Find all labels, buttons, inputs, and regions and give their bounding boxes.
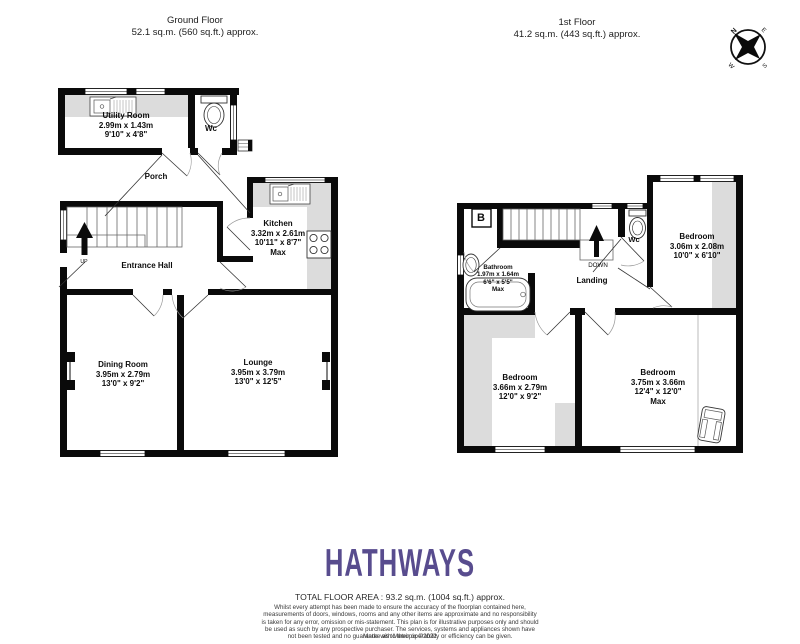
room-dim-imperial: 6'6" x 5'5" xyxy=(477,279,519,286)
label-up: UP xyxy=(80,258,87,268)
room-dim-max: Max xyxy=(251,248,305,258)
room-dim-imperial: 12'4" x 12'0" xyxy=(631,387,685,397)
room-dim-metric: 3.66m x 2.79m xyxy=(493,383,547,393)
room-dim-metric: 2.99m x 1.43m xyxy=(99,121,153,131)
label-down: DOWN xyxy=(588,261,608,271)
first-floor-title: 1st Floor xyxy=(437,17,717,29)
label-bedroom-small: Bedroom 3.06m x 2.08m 10'0" x 6'10" xyxy=(670,232,724,261)
room-dim-imperial: 13'0" x 12'5" xyxy=(231,377,285,387)
ground-walls xyxy=(58,88,338,457)
first-walls xyxy=(457,175,743,453)
stairs-direction: DOWN xyxy=(588,261,608,271)
room-name: Bedroom xyxy=(493,373,547,383)
label-bedroom-left: Bedroom 3.66m x 2.79m 12'0" x 9'2" xyxy=(493,373,547,402)
hathways-logo: HATHWAYS xyxy=(20,541,780,586)
room-name: Dining Room xyxy=(96,360,150,370)
room-dim-imperial: 10'0" x 6'10" xyxy=(670,251,724,261)
compass-star xyxy=(734,33,761,60)
room-name: Wc xyxy=(628,235,639,245)
armchair-icon xyxy=(697,406,726,443)
room-dim-imperial: 10'11" x 8'7" xyxy=(251,238,305,248)
room-name: Entrance Hall xyxy=(121,261,172,271)
room-dim-imperial: 13'0" x 9'2" xyxy=(96,379,150,389)
compass-w: W xyxy=(726,62,734,70)
up-arrow xyxy=(76,222,93,255)
label-lounge: Lounge 3.95m x 3.79m 13'0" x 12'5" xyxy=(231,358,285,387)
wc-toilet-icon xyxy=(201,96,227,127)
compass-e: E xyxy=(760,27,767,34)
room-dim-imperial: 12'0" x 9'2" xyxy=(493,392,547,402)
room-dim-metric: 3.95m x 3.79m xyxy=(231,368,285,378)
label-entrance-hall: Entrance Hall xyxy=(121,261,172,271)
total-floor-area: TOTAL FLOOR AREA : 93.2 sq.m. (1004 sq.f… xyxy=(0,592,800,602)
label-wc-ground: Wc xyxy=(205,124,217,134)
first-floor-header: 1st Floor 41.2 sq.m. (443 sq.ft.) approx… xyxy=(437,17,717,41)
room-dim-imperial: 9'10" x 4'8" xyxy=(99,130,153,140)
room-dim-metric: 3.95m x 2.79m xyxy=(96,370,150,380)
first-floor-area: 41.2 sq.m. (443 sq.ft.) approx. xyxy=(437,29,717,41)
compass-rose: N E S W xyxy=(714,13,782,81)
hob-icon xyxy=(307,231,331,258)
label-kitchen: Kitchen 3.32m x 2.61m 10'11" x 8'7" Max xyxy=(251,219,305,257)
stairs-direction: UP xyxy=(80,258,87,268)
room-name: Bedroom xyxy=(631,368,685,378)
room-name: Utility Room xyxy=(99,111,153,121)
label-boiler: B xyxy=(477,212,485,224)
label-utility-room: Utility Room 2.99m x 1.43m 9'10" x 4'8" xyxy=(99,111,153,140)
label-landing: Landing xyxy=(576,276,607,286)
room-name: Bedroom xyxy=(670,232,724,242)
ground-floor-title: Ground Floor xyxy=(55,15,335,27)
room-name: Kitchen xyxy=(251,219,305,229)
room-name: Wc xyxy=(205,124,217,134)
ground-floor-area: 52.1 sq.m. (560 sq.ft.) approx. xyxy=(55,27,335,39)
boiler-letter: B xyxy=(477,212,485,224)
label-bedroom-right: Bedroom 3.75m x 3.66m 12'4" x 12'0" Max xyxy=(631,368,685,406)
label-wc-first: Wc xyxy=(628,235,639,245)
label-porch: Porch xyxy=(145,172,168,182)
floorplan-page: Ground Floor 52.1 sq.m. (560 sq.ft.) app… xyxy=(0,0,800,644)
room-dim-metric: 3.75m x 3.66m xyxy=(631,378,685,388)
room-name: Lounge xyxy=(231,358,285,368)
ground-floor-plan xyxy=(50,85,350,465)
room-name: Porch xyxy=(145,172,168,182)
room-name: Bathroom xyxy=(477,264,519,271)
room-dim-metric: 1.97m x 1.64m xyxy=(477,271,519,278)
kitchen-sink-icon xyxy=(270,184,310,204)
doorstep-icon xyxy=(238,140,252,151)
label-dining-room: Dining Room 3.95m x 2.79m 13'0" x 9'2" xyxy=(96,360,150,389)
metropix-credit: Made with Metropix ©2022 xyxy=(0,633,800,640)
room-dim-max: Max xyxy=(477,286,519,293)
first-floor-plan xyxy=(450,160,750,460)
compass-s: S xyxy=(762,63,769,70)
room-dim-metric: 3.06m x 2.08m xyxy=(670,242,724,252)
room-name: Landing xyxy=(576,276,607,286)
ground-floor-header: Ground Floor 52.1 sq.m. (560 sq.ft.) app… xyxy=(55,15,335,39)
label-bathroom: Bathroom 1.97m x 1.64m 6'6" x 5'5" Max xyxy=(477,264,519,294)
room-dim-metric: 3.32m x 2.61m xyxy=(251,229,305,239)
room-dim-max: Max xyxy=(631,397,685,407)
